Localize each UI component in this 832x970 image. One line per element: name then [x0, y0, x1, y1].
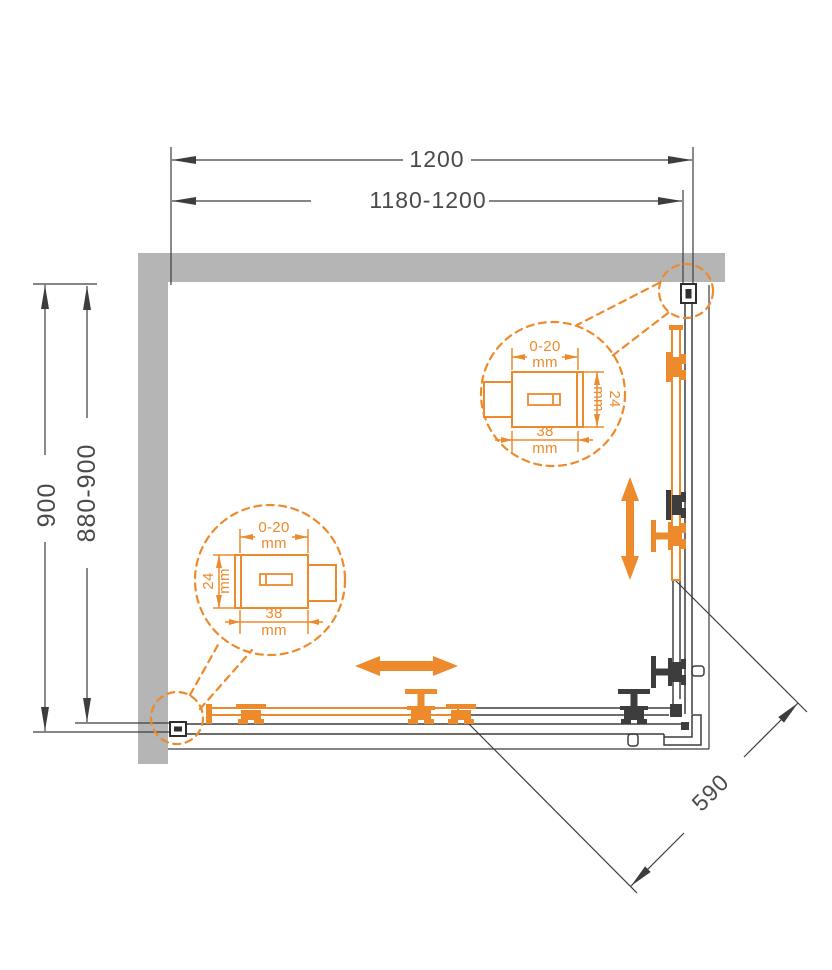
profile-flange	[235, 555, 241, 608]
profile-tab	[484, 382, 512, 417]
dim-line	[631, 833, 684, 886]
arrowhead	[229, 619, 240, 625]
walls	[138, 253, 725, 764]
detail-label-depth: 24	[200, 572, 217, 589]
detail-label-unit: mm	[261, 535, 287, 552]
wall-top	[138, 253, 725, 282]
dim-entry-diagonal: 590	[467, 580, 807, 893]
profile-body	[240, 555, 308, 608]
detail-label-adjustment: 0-20	[258, 519, 289, 536]
detail-label-width: 38	[536, 423, 553, 440]
door-handle-bottom	[628, 734, 638, 746]
sliding-rail-right-endcap	[669, 325, 683, 330]
profile-detail-right: 0-20 mm 24 mm 38 mm	[484, 338, 623, 457]
roller-bracket-bottom-fixed	[618, 689, 650, 724]
detail-label-unit: mm	[590, 386, 607, 412]
horizontal-slide-arrow-icon	[355, 656, 458, 676]
profile-detail-left: 0-20 mm 24 mm 38 mm	[200, 519, 336, 639]
detail-label-unit: mm	[261, 622, 287, 639]
callout-connector	[200, 650, 252, 709]
arrowhead	[578, 437, 589, 443]
detail-label-width: 38	[265, 605, 282, 622]
callout-connector	[577, 283, 659, 325]
dim-line	[744, 703, 798, 757]
corner-joint-insert	[681, 722, 689, 730]
callout-connector	[612, 313, 668, 356]
detail-label-depth: 24	[606, 390, 623, 407]
door-handle-right	[692, 666, 704, 676]
shower-enclosure-dimension-diagram: 1200 1180-1200 900 880-900 590	[0, 0, 832, 970]
slide-direction-arrows	[355, 477, 639, 676]
detail-label-unit: mm	[532, 354, 558, 371]
dim-label-depth-total: 900	[33, 483, 61, 528]
ext-line-upper	[675, 580, 807, 712]
wall-profile-top-slot	[686, 289, 692, 299]
arrowhead	[501, 437, 512, 443]
detail-label-unit: mm	[216, 568, 233, 594]
corner-joint-block	[670, 704, 682, 717]
wall-left	[138, 282, 168, 764]
detail-label-unit: mm	[532, 440, 558, 457]
profile-flange	[577, 372, 583, 427]
dim-label-width-total: 1200	[409, 146, 464, 172]
roller-bracket-bottom-sliding	[405, 689, 437, 724]
dim-label-entry-diagonal: 590	[687, 769, 735, 817]
dim-label-depth-range: 880-900	[73, 444, 101, 543]
callout-connector	[190, 643, 219, 695]
sliding-rail-bottom-endcap	[206, 704, 212, 724]
dim-label-width-range: 1180-1200	[369, 187, 486, 213]
profile-tab	[308, 565, 336, 601]
wall-profile-left-slot	[174, 727, 182, 732]
profile-body	[512, 372, 578, 427]
ext-line-lower	[467, 722, 637, 893]
diagram-canvas: 1200 1180-1200 900 880-900 590	[0, 0, 832, 970]
arrowhead	[308, 619, 319, 625]
vertical-slide-arrow-icon	[621, 477, 639, 580]
detail-label-adjustment: 0-20	[529, 338, 560, 355]
